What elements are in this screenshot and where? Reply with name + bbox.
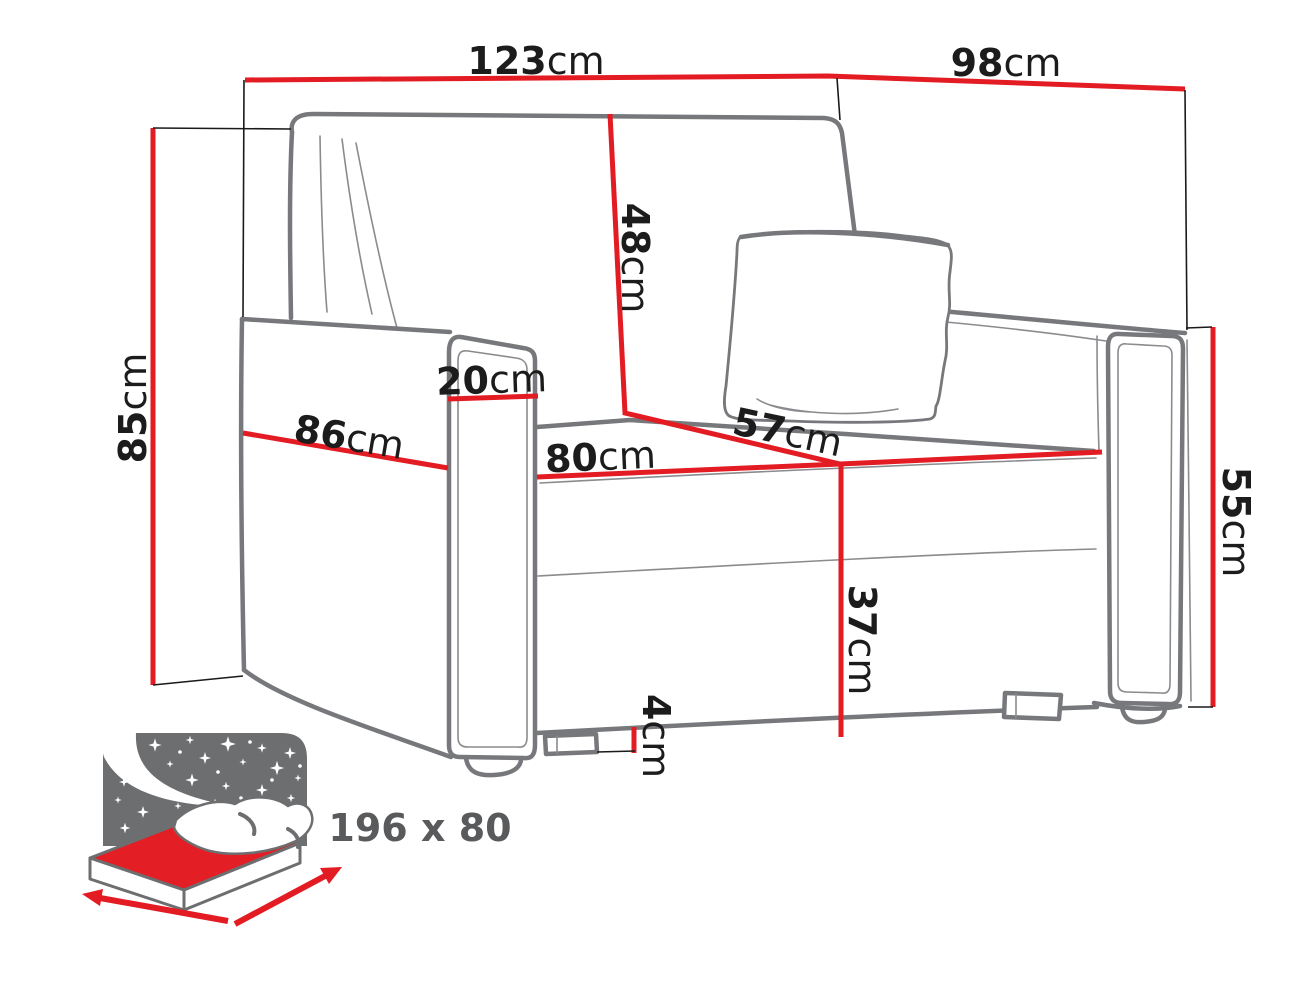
- backrest-left-edge: [290, 132, 292, 318]
- dimension-diagram: 123cm 98cm 85cm 48cm 20cm 86cm 80cm 57cm…: [0, 0, 1314, 985]
- extension-line: [153, 676, 243, 685]
- extension-line: [243, 80, 244, 317]
- label-overall-width: 123cm: [467, 39, 604, 83]
- arrow-length-head: [82, 889, 103, 906]
- left-arm-leg: [466, 758, 521, 775]
- sleeping-area-label: 196 x 80: [328, 806, 511, 850]
- seat-right-leg: [1004, 693, 1061, 719]
- backrest-crease: [320, 136, 327, 312]
- extension-line: [153, 128, 291, 129]
- label-base-height: 37cm: [840, 585, 884, 696]
- label-leg-height: 4cm: [634, 694, 678, 778]
- label-overall-depth: 98cm: [951, 41, 1062, 85]
- seat-left-leg: [545, 734, 597, 754]
- right-arm-inner-edge: [1097, 336, 1099, 451]
- extension-line: [1186, 327, 1212, 328]
- extension-line: [597, 751, 635, 752]
- pillow: [724, 231, 951, 422]
- dimension-labels: 123cm 98cm 85cm 48cm 20cm 86cm 80cm 57cm…: [111, 39, 1258, 778]
- backrest-crease: [356, 143, 397, 328]
- extension-line: [1185, 90, 1187, 330]
- backrest-top-edge: [292, 114, 857, 251]
- backrest-right-top-edge: [930, 310, 1185, 333]
- label-overall-height: 85cm: [111, 353, 155, 464]
- sofa-dimension-svg: 123cm 98cm 85cm 48cm 20cm 86cm 80cm 57cm…: [0, 0, 1314, 985]
- seat-front-crease: [538, 549, 1096, 576]
- label-seat-width: 80cm: [544, 433, 657, 482]
- backrest-crease: [342, 139, 372, 314]
- sleep-function-icon: 196 x 80: [82, 733, 512, 924]
- label-backrest-height: 48cm: [613, 203, 657, 314]
- sofa-left-outer-edge: [241, 319, 244, 670]
- left-arm-top-edge: [242, 319, 450, 332]
- label-armrest-height: 55cm: [1214, 467, 1258, 578]
- label-side-seat-depth: 86cm: [291, 406, 408, 468]
- label-armrest-width: 20cm: [435, 356, 547, 404]
- right-arm-outer-sliver: [1187, 340, 1191, 701]
- extension-line: [837, 78, 840, 120]
